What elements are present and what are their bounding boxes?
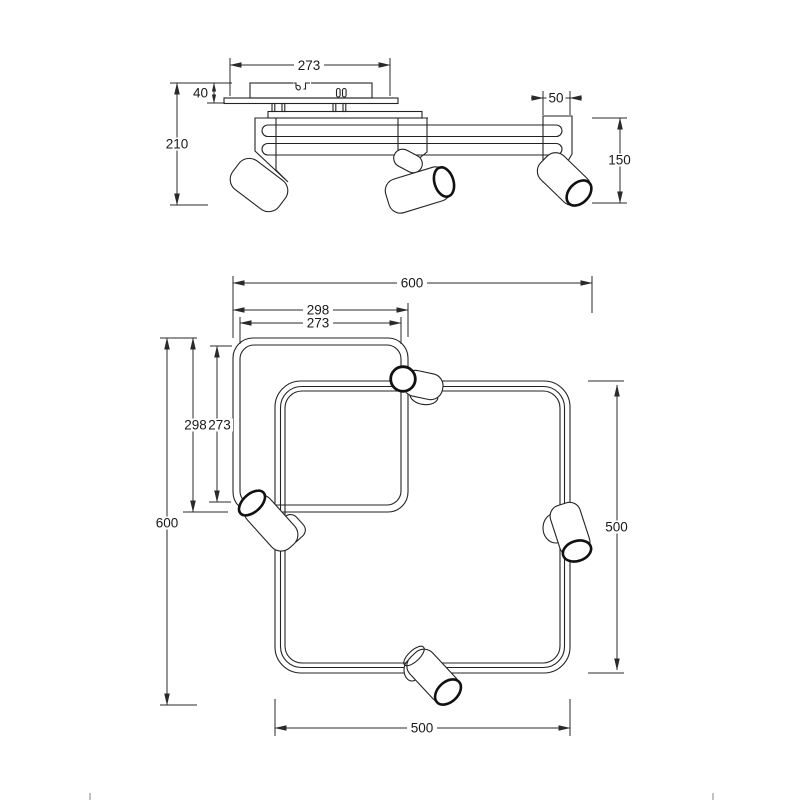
spotlight-left <box>234 486 308 556</box>
page-crop-marks <box>90 793 713 800</box>
spotlight-right <box>543 499 594 565</box>
dim-label-end-profile-width: 50 <box>548 91 563 106</box>
outer-frame-tube-outer <box>275 381 570 673</box>
dimension-canopy-width: 273 <box>230 58 390 96</box>
cable-slot <box>337 89 341 98</box>
dim-label-outer-frame-width: 500 <box>411 721 434 736</box>
standoff-leg <box>343 104 346 112</box>
dim-label-inner-frame-inner-height: 273 <box>208 418 231 433</box>
frame-edge-view <box>225 116 596 217</box>
dim-label-canopy-height: 40 <box>193 86 208 101</box>
side-view-drawing: 273 40 210 50 <box>162 58 635 217</box>
dimension-outer-frame-height: 500 <box>588 381 632 673</box>
standoff-leg <box>272 104 275 112</box>
dim-label-overall-width: 600 <box>401 276 424 291</box>
dimension-end-profile-width: 50 <box>531 91 582 116</box>
inner-frame-tube-outer <box>233 338 408 512</box>
spotlight-head-left <box>225 153 293 217</box>
dimension-inner-frame-inner-height: 273 <box>206 346 233 502</box>
dimension-spot-drop-height: 150 <box>592 118 635 203</box>
spotlight-bottom <box>401 643 466 709</box>
dim-label-outer-frame-height: 500 <box>605 520 628 535</box>
dim-label-canopy-width: 273 <box>298 58 321 73</box>
dim-label-inner-frame-inner-width: 273 <box>307 316 330 331</box>
dimension-outer-frame-width: 500 <box>275 699 570 736</box>
dim-label-overall-height-side: 210 <box>166 137 189 152</box>
dimension-canopy-height: 40 <box>170 83 232 103</box>
dimension-inner-frame-inner-width: 273 <box>240 316 401 345</box>
dim-label-spot-drop-height: 150 <box>608 153 631 168</box>
dimension-overall-height-side: 210 <box>162 83 208 205</box>
frame-tube-upper <box>262 125 562 137</box>
outer-square-frame <box>275 381 570 673</box>
dimension-overall-width: 600 <box>233 276 592 339</box>
mounting-rail <box>268 112 422 119</box>
ceiling-canopy <box>224 81 422 118</box>
dim-label-inner-frame-outer-height: 298 <box>184 418 207 433</box>
dimension-drawing: 273 40 210 50 <box>0 0 800 800</box>
canopy-plate <box>224 98 398 104</box>
inner-frame-tube-inner <box>240 345 401 505</box>
dimension-overall-height: 600 <box>152 338 197 705</box>
top-view-drawing: 600 298 273 600 <box>152 276 632 737</box>
dim-label-overall-height: 600 <box>156 516 179 531</box>
inner-square-frame <box>233 338 408 512</box>
technical-drawing-page: 273 40 210 50 <box>0 0 800 800</box>
spotlight-swivel-ring <box>391 367 416 392</box>
cable-slot <box>343 89 347 98</box>
standoff-leg <box>282 104 285 112</box>
outer-frame-tube-middle <box>281 387 565 668</box>
spotlight-top <box>391 367 446 407</box>
canopy-box <box>250 83 372 98</box>
standoff-leg <box>333 104 336 112</box>
outer-frame-tube-inner <box>285 391 560 663</box>
